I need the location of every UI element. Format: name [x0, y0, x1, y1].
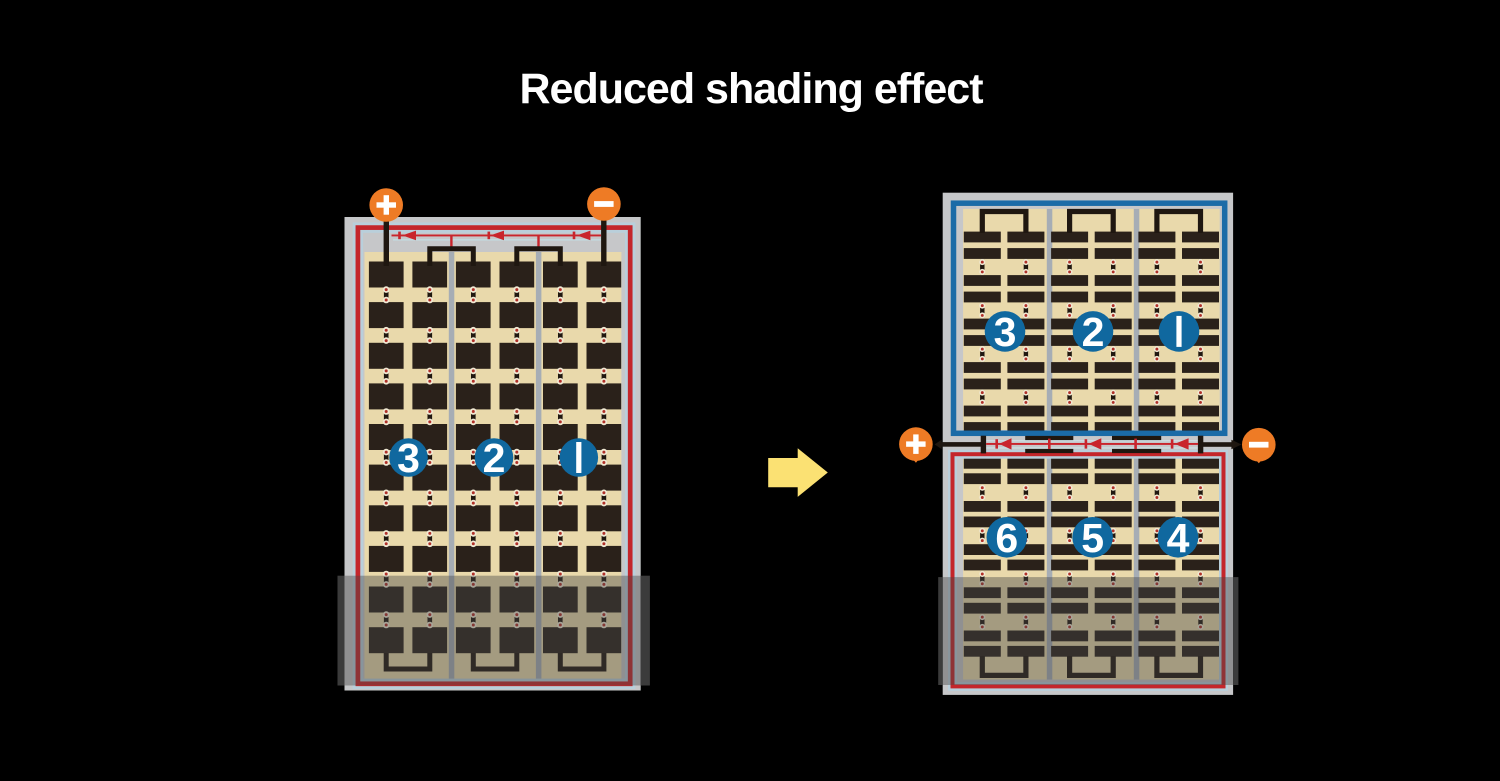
svg-text:5: 5	[1081, 515, 1104, 561]
svg-text:2: 2	[1082, 309, 1105, 355]
svg-text:3: 3	[397, 435, 420, 481]
svg-text:3: 3	[994, 309, 1017, 355]
svg-text:6: 6	[995, 515, 1018, 561]
svg-text:4: 4	[1167, 515, 1190, 561]
svg-text:2: 2	[483, 435, 506, 481]
svg-text:Reduced shading effect: Reduced shading effect	[519, 65, 983, 113]
